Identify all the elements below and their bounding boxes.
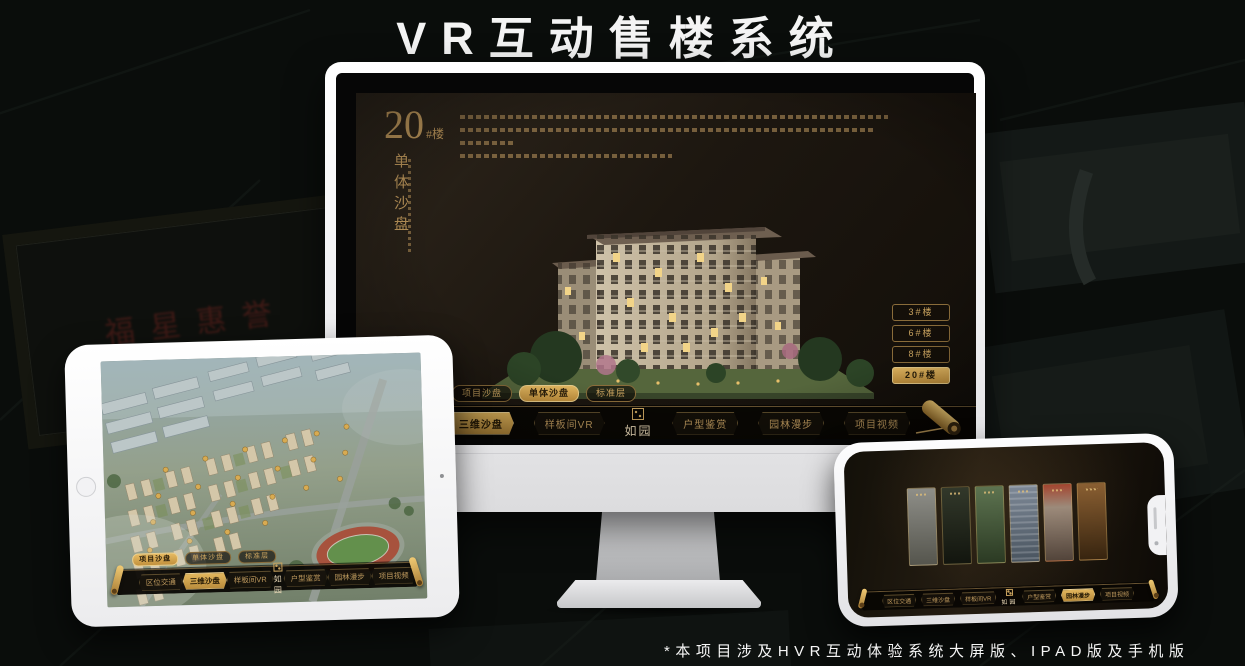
tablet-nav-3d-sandbox[interactable]: 三维沙盘 [183,572,227,590]
floor-button-6[interactable]: 6#楼 [892,325,950,342]
monitor-stand-neck [596,510,720,582]
gallery-card-entrance[interactable] [1043,483,1074,562]
tablet-brand-logo[interactable]: 如园 [273,562,284,595]
tablet-nav-showroom-vr[interactable]: 样板间VR [227,570,274,588]
project-description-text [460,115,892,167]
phone-nav-location[interactable]: 区位交通 [882,593,916,607]
nav-item-3d-sandbox[interactable]: 三维沙盘 [448,412,514,435]
nav-item-showroom-vr[interactable]: 样板间VR [534,412,605,435]
tablet-camera-icon [440,474,444,478]
footnote-text: *本项目涉及HVR互动体验系统大屏版、IPAD版及手机版 [664,640,1189,661]
floor-button-3[interactable]: 3#楼 [892,304,950,321]
logo-text: 如园 [1001,596,1017,605]
tablet-home-button[interactable] [76,477,97,498]
phone-device: 区位交通 三维沙盘 样板间VR 如园 户型鉴赏 园林漫步 项目视频 [833,433,1179,628]
logo-text: 如园 [624,422,652,439]
phone-speaker-icon [1153,507,1157,529]
floor-button-group: 3#楼 6#楼 8#楼 20#楼 [892,304,950,388]
phone-nav-3d-sandbox[interactable]: 三维沙盘 [921,592,955,606]
building-render-illustration [468,167,892,405]
tablet-tab-standard-floor[interactable]: 标准层 [238,550,276,564]
phone-nav-unit-plans[interactable]: 户型鉴赏 [1022,589,1056,603]
tablet-nav-location[interactable]: 区位交通 [139,573,183,591]
gallery-card-garden-night[interactable] [941,486,972,565]
tablet-tab-project-sandbox[interactable]: 项目沙盘 [132,552,178,566]
phone-nav-project-video[interactable]: 项目视频 [1100,587,1134,601]
nav-item-project-video[interactable]: 项目视频 [844,412,910,435]
phone-brand-logo[interactable]: 如园 [1001,588,1018,605]
monitor-stand-foot [557,580,761,608]
floor-button-20[interactable]: 20#楼 [892,367,950,384]
gallery-card-interior[interactable] [1077,482,1108,561]
tablet-app-screen: 项目沙盘 单体沙盘 标准层 区位交通 三维沙盘 样板间VR 如园 户型鉴赏 园林… [101,353,428,608]
nav-item-garden-walk[interactable]: 园林漫步 [758,412,824,435]
view-tab-row: 项目沙盘 单体沙盘 标准层 [452,385,636,402]
promo-canvas: 福星惠誉 VR互动售楼系统 20#楼 单体沙盘 [0,0,1245,666]
page-title: VR互动售楼系统 [0,2,1245,67]
gallery-card-landscape[interactable] [975,485,1006,564]
gallery-card-building[interactable] [1009,484,1040,563]
tablet-tab-single-sandbox[interactable]: 单体沙盘 [185,551,231,565]
tablet-nav-garden-walk[interactable]: 园林漫步 [327,567,371,585]
phone-nav-garden-walk[interactable]: 园林漫步 [1061,588,1095,602]
tablet-nav-project-video[interactable]: 项目视频 [371,566,415,584]
nav-item-unit-plans[interactable]: 户型鉴赏 [672,412,738,435]
phone-notch [1147,495,1167,556]
scene-gallery [907,482,1108,566]
gallery-card-courtyard[interactable] [907,487,938,566]
scroll-handle-icon[interactable] [912,397,970,439]
logo-seal-icon [632,408,644,420]
logo-text: 如园 [274,573,285,595]
tab-project-sandbox[interactable]: 项目沙盘 [452,385,512,402]
phone-nav-showroom-vr[interactable]: 样板间VR [960,591,997,605]
tab-single-sandbox[interactable]: 单体沙盘 [519,385,579,402]
unit-suffix: #楼 [426,127,444,141]
tablet-nav-unit-plans[interactable]: 户型鉴赏 [283,569,327,587]
unit-title-block: 20#楼 单体沙盘 [384,105,444,237]
unit-subtitle-english-deco [408,159,411,255]
floor-button-8[interactable]: 8#楼 [892,346,950,363]
tab-standard-floor[interactable]: 标准层 [586,385,636,402]
logo-seal-icon [274,562,283,571]
phone-camera-icon [1154,541,1158,545]
phone-app-screen: 区位交通 三维沙盘 样板间VR 如园 户型鉴赏 园林漫步 项目视频 [843,442,1168,618]
unit-number: 20 [384,102,424,147]
logo-seal-icon [1005,588,1012,595]
tablet-device: 项目沙盘 单体沙盘 标准层 区位交通 三维沙盘 样板间VR 如园 户型鉴赏 园林… [64,335,460,628]
brand-logo[interactable]: 如园 [624,408,652,439]
